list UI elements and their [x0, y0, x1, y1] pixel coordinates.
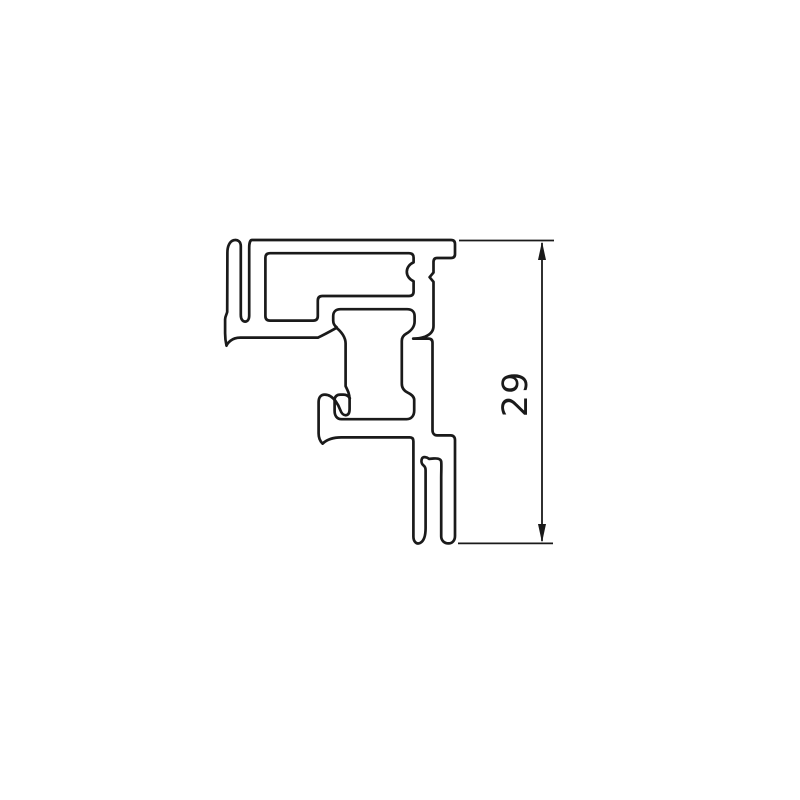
dimension-annotation: 29: [458, 241, 554, 544]
arrow-up-icon: [538, 242, 546, 261]
arrow-down-icon: [538, 524, 546, 543]
technical-drawing: 29: [0, 0, 800, 800]
extrusion-profile: [225, 240, 455, 543]
drawing-canvas: 29: [0, 0, 800, 800]
profile-outline: [225, 240, 455, 543]
dimension-value: 29: [496, 371, 536, 418]
